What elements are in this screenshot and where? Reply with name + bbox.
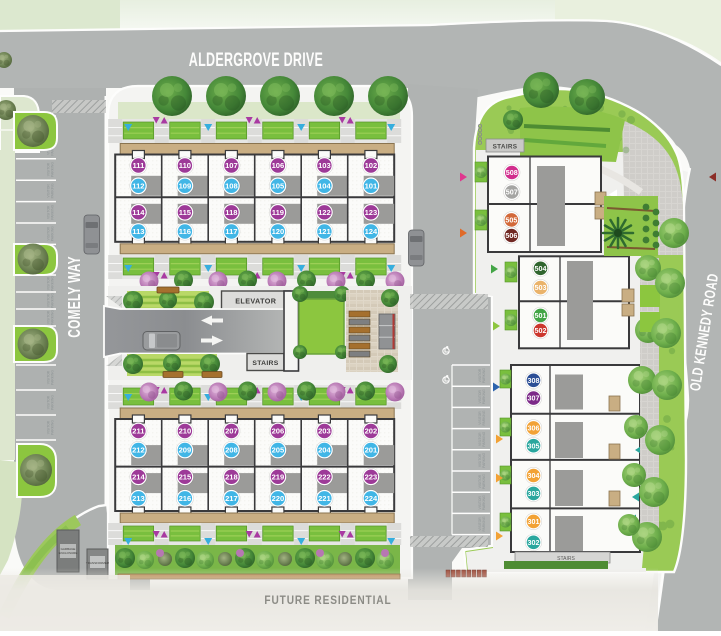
svg-text:124: 124 xyxy=(365,227,378,236)
svg-text:211: 211 xyxy=(132,427,145,436)
svg-text:ELEVATOR: ELEVATOR xyxy=(235,297,277,306)
svg-text:PARKING: PARKING xyxy=(482,431,486,446)
svg-text:213: 213 xyxy=(132,494,145,503)
svg-text:117: 117 xyxy=(225,227,237,236)
svg-text:116: 116 xyxy=(179,227,191,236)
svg-text:PARKING: PARKING xyxy=(51,420,55,435)
svg-text:212: 212 xyxy=(132,446,145,455)
svg-text:120: 120 xyxy=(272,227,285,236)
svg-text:305: 305 xyxy=(528,441,540,450)
svg-text:209: 209 xyxy=(179,446,192,455)
svg-text:208: 208 xyxy=(225,446,238,455)
svg-text:115: 115 xyxy=(179,208,192,217)
svg-text:PARKING: PARKING xyxy=(51,370,55,385)
svg-text:221: 221 xyxy=(318,494,331,503)
svg-text:101: 101 xyxy=(365,181,378,190)
svg-text:104: 104 xyxy=(318,181,331,190)
svg-text:108: 108 xyxy=(225,181,238,190)
svg-text:PARKING: PARKING xyxy=(482,474,486,489)
svg-text:503: 503 xyxy=(535,283,547,292)
svg-text:222: 222 xyxy=(318,472,331,481)
svg-text:201: 201 xyxy=(365,446,378,455)
svg-text:214: 214 xyxy=(132,472,145,481)
svg-text:204: 204 xyxy=(318,446,331,455)
svg-text:202: 202 xyxy=(365,427,378,436)
svg-text:205: 205 xyxy=(272,446,285,455)
svg-text:501: 501 xyxy=(535,311,547,320)
svg-text:109: 109 xyxy=(179,181,192,190)
svg-text:PARKING: PARKING xyxy=(51,276,55,291)
svg-text:502: 502 xyxy=(535,326,547,335)
svg-text:219: 219 xyxy=(272,472,285,481)
svg-text:PARKING: PARKING xyxy=(482,495,486,510)
svg-text:505: 505 xyxy=(505,216,517,225)
svg-text:203: 203 xyxy=(318,427,331,436)
svg-text:217: 217 xyxy=(225,494,238,503)
svg-text:121: 121 xyxy=(318,227,331,236)
svg-text:PARKING: PARKING xyxy=(51,183,55,198)
svg-text:ALDERGROVE DRIVE: ALDERGROVE DRIVE xyxy=(189,49,323,70)
svg-text:301: 301 xyxy=(528,517,540,526)
svg-text:106: 106 xyxy=(272,161,285,170)
svg-text:206: 206 xyxy=(272,427,285,436)
svg-text:PARKING: PARKING xyxy=(51,310,55,325)
svg-text:119: 119 xyxy=(272,208,284,217)
svg-text:218: 218 xyxy=(225,472,238,481)
svg-text:508: 508 xyxy=(506,168,518,177)
svg-text:PARKING: PARKING xyxy=(51,226,55,241)
svg-text:220: 220 xyxy=(272,494,285,503)
svg-text:118: 118 xyxy=(225,208,237,217)
svg-text:216: 216 xyxy=(179,494,192,503)
svg-text:PARKING: PARKING xyxy=(482,389,486,404)
svg-text:303: 303 xyxy=(528,489,540,498)
svg-text:PARKING: PARKING xyxy=(482,516,486,531)
svg-text:PARKING: PARKING xyxy=(51,204,55,219)
svg-text:302: 302 xyxy=(528,538,540,547)
svg-text:113: 113 xyxy=(132,227,144,236)
svg-text:110: 110 xyxy=(179,161,191,170)
svg-text:STAIRS: STAIRS xyxy=(252,360,278,367)
svg-text:PARKING: PARKING xyxy=(51,293,55,308)
svg-text:102: 102 xyxy=(365,161,378,170)
svg-text:PARKING: PARKING xyxy=(51,395,55,410)
svg-text:ENCLOSURE: ENCLOSURE xyxy=(59,551,78,555)
svg-text:215: 215 xyxy=(179,472,192,481)
svg-text:TRANSFORMER: TRANSFORMER xyxy=(86,561,110,565)
svg-text:COMELY WAY: COMELY WAY xyxy=(65,256,85,338)
svg-text:107: 107 xyxy=(225,161,238,170)
svg-text:224: 224 xyxy=(365,494,378,503)
svg-text:207: 207 xyxy=(225,427,238,436)
svg-text:306: 306 xyxy=(528,424,540,433)
svg-text:504: 504 xyxy=(535,264,547,273)
svg-text:122: 122 xyxy=(318,208,331,217)
svg-text:307: 307 xyxy=(528,394,540,403)
svg-text:PARKING: PARKING xyxy=(482,410,486,425)
svg-text:114: 114 xyxy=(132,208,145,217)
svg-text:223: 223 xyxy=(365,472,378,481)
svg-text:FUTURE RESIDENTIAL: FUTURE RESIDENTIAL xyxy=(264,594,391,607)
svg-text:112: 112 xyxy=(132,181,144,190)
svg-text:507: 507 xyxy=(506,188,518,197)
svg-text:STAIRS: STAIRS xyxy=(493,144,518,151)
svg-text:PARKING: PARKING xyxy=(51,162,55,177)
svg-text:123: 123 xyxy=(365,208,378,217)
svg-text:506: 506 xyxy=(505,231,517,240)
svg-text:308: 308 xyxy=(528,376,540,385)
svg-text:105: 105 xyxy=(272,181,285,190)
svg-text:PARKING: PARKING xyxy=(482,368,486,383)
svg-text:304: 304 xyxy=(528,471,540,480)
svg-text:210: 210 xyxy=(179,427,192,436)
svg-text:PARKING: PARKING xyxy=(482,453,486,468)
svg-text:111: 111 xyxy=(132,161,145,170)
svg-text:103: 103 xyxy=(318,161,331,170)
